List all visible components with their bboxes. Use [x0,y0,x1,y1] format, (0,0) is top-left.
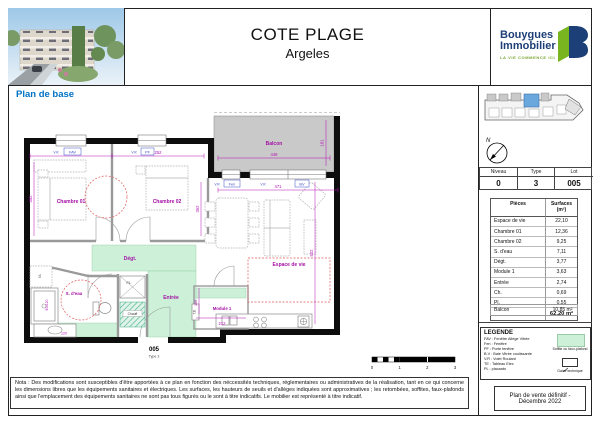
lot-type: Type 3 [149,355,160,359]
unit-col-niveau: Niveau [480,168,518,177]
fen-tag: Fen [229,181,236,186]
label-module1: Module 1 [213,306,232,311]
dim-181: 181 [320,139,325,147]
vr-tag-4: V.R [260,182,266,186]
label-espace-de-vie: Espace de vie [272,262,305,268]
table-row: Entrée2,74 [491,278,577,288]
vr-tag-2: V.R [131,150,137,154]
highlighted-unit [524,94,539,107]
vr-tag-3: V.R [214,182,220,186]
dim-shower: 90x120 [45,299,49,310]
scale-2: 2 [426,365,429,370]
logo-cell: Bouygues Immobilier LA VIE COMMENCE ICI [490,8,592,85]
floor-plan: 342 252 448 181 471 352 362 502 212 169 … [8,86,478,376]
sale-plan-stamp: Plan de vente définitif - Décembre 2022 [494,386,586,411]
row-value: 3,77 [546,258,577,268]
brand-b-icon [557,24,589,62]
balcon-label: Balcon [491,305,546,315]
scale-bar: 0 1 2 3 [371,357,457,370]
plan-sheet: COTE PLAGE Argeles Bouygues Immobilier L… [0,0,600,424]
unit-val-lot: 005 [555,177,593,189]
gaine-label: Gaine technique [550,369,590,373]
pf-tag: PF [145,149,151,154]
row-value: 22,10 [546,217,577,227]
nota-text: Nota : Des modifications sont susceptibl… [10,377,469,409]
row-label: Ch. [491,288,546,298]
row-value: 2,74 [546,278,577,288]
legend: LEGENDE FAV : Fenêtre Allège Vitrée Fen … [480,327,591,380]
project-title: COTE PLAGE [125,25,490,45]
key-plan [481,90,591,132]
table-row: Espace de vie22,10 [491,217,577,227]
row-label: Chambre 01 [491,227,546,237]
row-label: Espace de vie [491,217,546,227]
surfaces-table: PiècesSurfaces (m²) Espace de vie22,10 C… [490,198,578,321]
header: COTE PLAGE Argeles Bouygues Immobilier L… [8,8,592,85]
label-sdeau: S. d'eau [66,291,83,296]
building-photo-illustration [8,8,124,85]
fav-tag: FAV [69,149,76,154]
table-row: Ch.0,69 [491,288,577,298]
surfaces-header-pieces: Pièces [491,199,546,217]
vr-tag-1: V.R [53,150,59,154]
lot-label: 005 Type 3 [149,347,160,359]
table-row: S. d'eau7,11 [491,247,577,257]
balcon-value: 10,85 m² [546,305,579,315]
label-chambre02: Chambre 02 [153,199,182,205]
sidebar-section-divider [479,322,592,323]
title-block: COTE PLAGE Argeles [125,25,490,61]
unit-col-type: Type [518,168,555,177]
label-balcon: Balcon [266,141,283,147]
brand-tagline: LA VIE COMMENCE ICI [500,55,556,60]
dim-471: 471 [275,184,283,189]
label-chambre01: Chambre 01 [57,199,86,205]
row-label: Dégt. [491,258,546,268]
label-ml: ML [38,274,42,279]
row-value: 3,63 [546,268,577,278]
table-row: Module 13,63 [491,268,577,278]
bv-tag: BV [299,181,305,186]
unit-val-type: 3 [518,177,555,189]
row-label: Chambre 02 [491,237,546,247]
north-compass-icon: N [481,133,513,167]
soffit-swatch-label: Soffite ou faux-plafond [552,347,588,351]
row-value: 7,11 [546,247,577,257]
label-pl: PL. [127,281,132,285]
compass-n: N [486,138,491,144]
row-label: S. d'eau [491,247,546,257]
table-row: Chambre 029,25 [491,237,577,247]
dim-120: 120 [61,332,67,336]
row-label: Entrée [491,278,546,288]
lot-number: 005 [149,347,160,353]
row-value: 0,69 [546,288,577,298]
unit-info-table: Niveau Type Lot 0 3 005 [479,167,592,190]
label-entree: Entrée [163,295,179,301]
dim-352: 352 [28,195,33,203]
dim-212: 212 [219,321,227,326]
label-chauff: Chauff [128,312,138,316]
scale-3: 3 [454,365,457,370]
dim-362: 362 [195,205,200,213]
dim-502: 502 [309,249,314,257]
table-row: Chambre 0112,36 [491,227,577,237]
dim-252: 252 [155,150,163,155]
scale-1: 1 [399,365,402,370]
row-label: Module 1 [491,268,546,278]
scale-0: 0 [371,365,374,370]
project-photo [8,8,125,85]
row-value: 9,25 [546,237,577,247]
unit-col-lot: Lot [555,168,593,177]
unit-val-niveau: 0 [480,177,518,189]
label-te: T.E [193,309,197,315]
brand-text: Bouygues Immobilier LA VIE COMMENCE ICI [500,30,556,60]
brand-line2: Immobilier [500,41,556,52]
gaine-icon [562,358,578,367]
project-city: Argeles [125,46,490,61]
row-value: 12,36 [546,227,577,237]
table-row: Dégt.3,77 [491,258,577,268]
legend-item: PL : placards [484,367,551,372]
sidebar-divider [478,85,479,416]
dim-448: 448 [271,152,279,157]
surfaces-header-surfaces: Surfaces (m²) [546,199,577,217]
soffit-swatch [557,334,585,347]
label-degt: Dégt. [124,256,137,262]
balcon-surface-row: Balcon 10,85 m² [490,304,578,316]
dim-169: 169 [194,300,198,306]
